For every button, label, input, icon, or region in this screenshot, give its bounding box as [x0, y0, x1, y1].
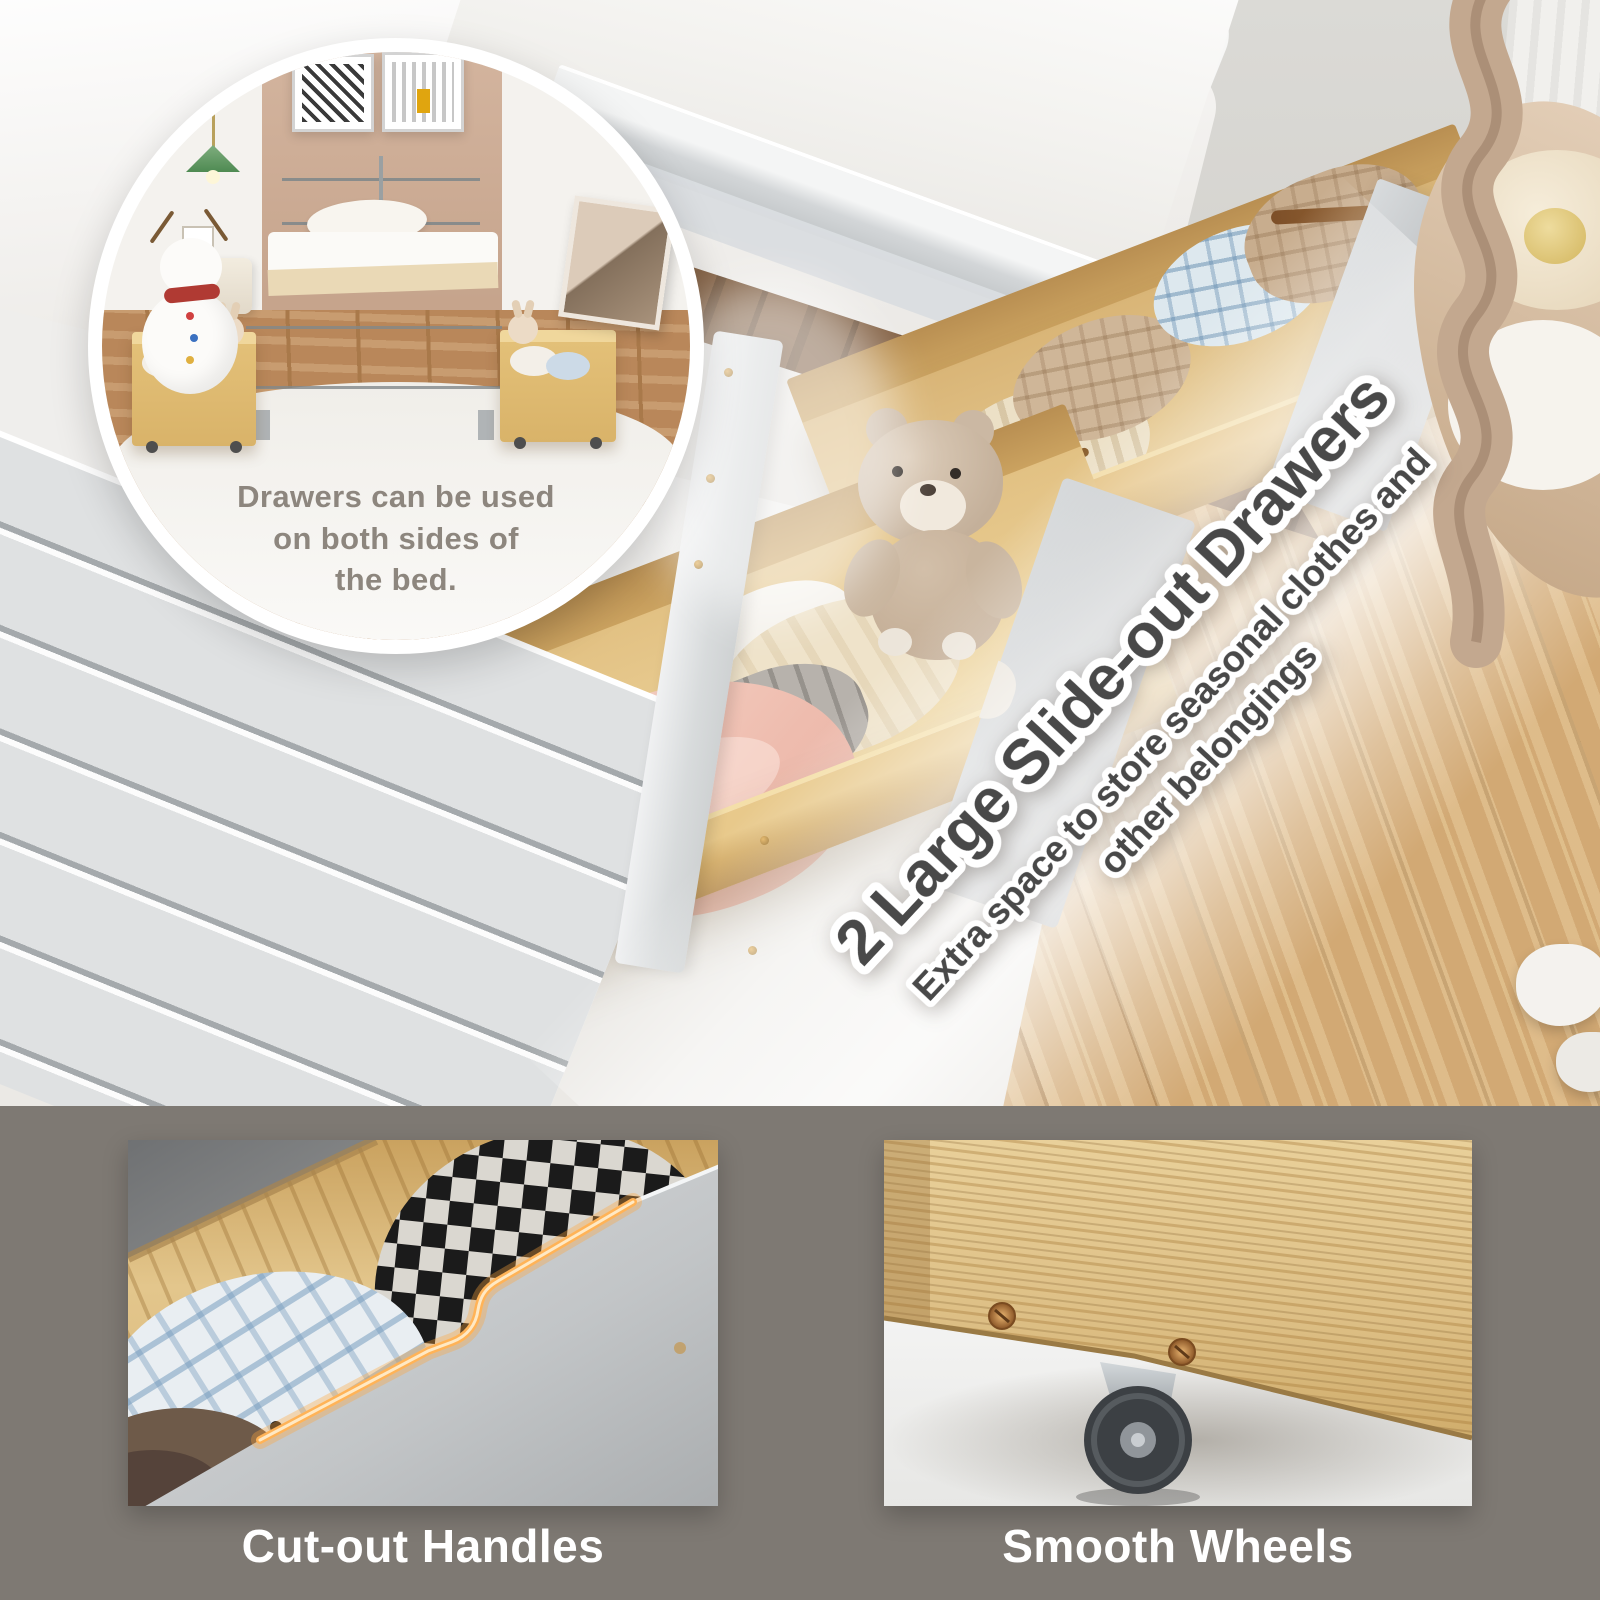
circle-inset: Drawers can be used on both sides of the… [88, 38, 704, 654]
wall-art-door [382, 52, 464, 132]
feature-band: Cut-out Handles Smooth Wheels [0, 1106, 1600, 1600]
snowman-button [186, 312, 194, 320]
main-photo: 2 Large Slide-out Drawers Extra space to… [0, 0, 1600, 1106]
caption-line: on both sides of [102, 518, 690, 560]
cutout-handle-photo [128, 1140, 718, 1506]
wall-art-stripes [292, 54, 374, 132]
teddy-nose [920, 484, 936, 496]
feature-panel-smooth-wheels [884, 1140, 1472, 1506]
caster-wheel-photo [884, 1140, 1472, 1506]
snowman-button [186, 356, 194, 364]
pendant-lamp-shade [186, 145, 240, 172]
pendant-lamp-bulb [206, 170, 220, 184]
feature-label-cutout-handles: Cut-out Handles [128, 1510, 718, 1582]
inset-drawer-right [500, 330, 616, 442]
product-feature-image: 2 Large Slide-out Drawers Extra space to… [0, 0, 1600, 1600]
inset-footboard [246, 296, 502, 414]
caption-line: Drawers can be used [102, 476, 690, 518]
bunny-plush [508, 314, 538, 344]
crumpled-paper [1516, 944, 1600, 1026]
snowman-button [190, 334, 198, 342]
leaning-canvas-art [558, 195, 676, 330]
feature-label-smooth-wheels: Smooth Wheels [884, 1510, 1472, 1582]
inset-caption: Drawers can be used on both sides of the… [102, 476, 690, 601]
snowman-antler [149, 210, 174, 243]
wavy-mirror [1336, 0, 1586, 642]
pendant-lamp-cord [212, 52, 215, 147]
snowman-body [142, 290, 238, 394]
caption-line: the bed. [102, 559, 690, 601]
teddy-eye [950, 468, 961, 479]
feature-panel-cutout-handles [128, 1140, 718, 1506]
inset-drawer-blanket [546, 352, 590, 380]
